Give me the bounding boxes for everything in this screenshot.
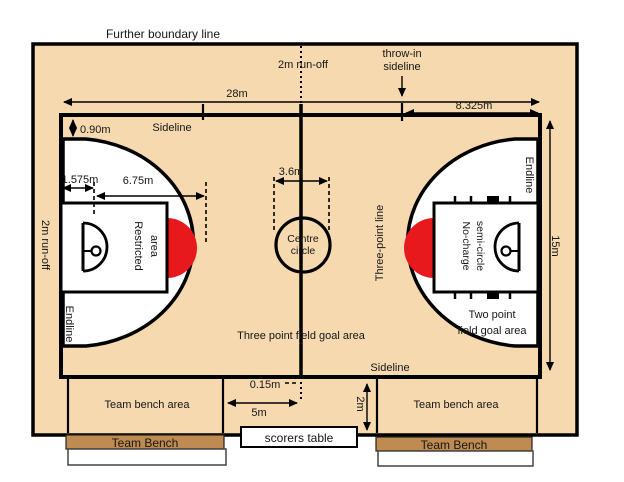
lane-block-bottom — [487, 292, 499, 299]
dim-label-2m-bench: 2m — [354, 396, 366, 411]
label-two-point-line2: field goal area — [457, 325, 527, 337]
team-bench-row-left — [68, 449, 226, 465]
dim-label-36m: 3.6m — [279, 166, 303, 178]
label-centre-circle-line2: circle — [291, 245, 316, 257]
dim-label-5m: 5m — [251, 407, 266, 419]
basketball-court-diagram: Further boundary line 2m run-off throw-i… — [0, 0, 624, 482]
label-team-bench-area-left: Team bench area — [105, 399, 191, 411]
dim-label-090m: 0.90m — [80, 124, 111, 136]
label-throw-in-line1: throw-in — [382, 48, 421, 60]
label-three-point-area: Three point field goal area — [237, 330, 366, 342]
label-endline-left: Endline — [63, 306, 75, 343]
label-further-boundary-line: Further boundary line — [106, 27, 220, 41]
team-bench-row-right — [378, 451, 533, 466]
dim-label-8325m: 8.325m — [456, 100, 493, 112]
label-sideline-bottom: Sideline — [370, 362, 409, 374]
label-two-point-line1: Two point — [468, 309, 515, 321]
dim-label-15m: 15m — [549, 235, 561, 256]
label-team-bench-right: Team Bench — [421, 438, 488, 452]
label-restricted-line1: Restricted — [132, 221, 144, 271]
label-team-bench-left: Team Bench — [112, 436, 179, 450]
label-team-bench-area-right: Team bench area — [414, 399, 500, 411]
label-restricted-line2: area — [148, 235, 160, 258]
dim-label-675m: 6.75m — [123, 175, 154, 187]
court-svg: Further boundary line 2m run-off throw-i… — [0, 0, 624, 482]
label-no-charge-line2: semi-circle — [474, 221, 486, 271]
dim-label-1575m: 1.575m — [62, 174, 99, 186]
dim-label-28m: 28m — [226, 88, 247, 100]
label-centre-circle-line1: Centre — [287, 233, 319, 245]
label-sideline-top: Sideline — [152, 122, 191, 134]
label-three-point-line: Three-point line — [374, 205, 386, 281]
label-run-off-top: 2m run-off — [278, 59, 329, 71]
label-no-charge-line1: No-charge — [460, 221, 472, 270]
label-run-off-left: 2m run-off — [39, 220, 51, 271]
label-scorers-table: scorers table — [265, 431, 334, 445]
dim-label-015m: 0.15m — [250, 379, 281, 391]
label-endline-right: Endline — [523, 157, 535, 194]
lane-block-top — [487, 196, 499, 203]
label-throw-in-line2: sideline — [383, 61, 420, 73]
